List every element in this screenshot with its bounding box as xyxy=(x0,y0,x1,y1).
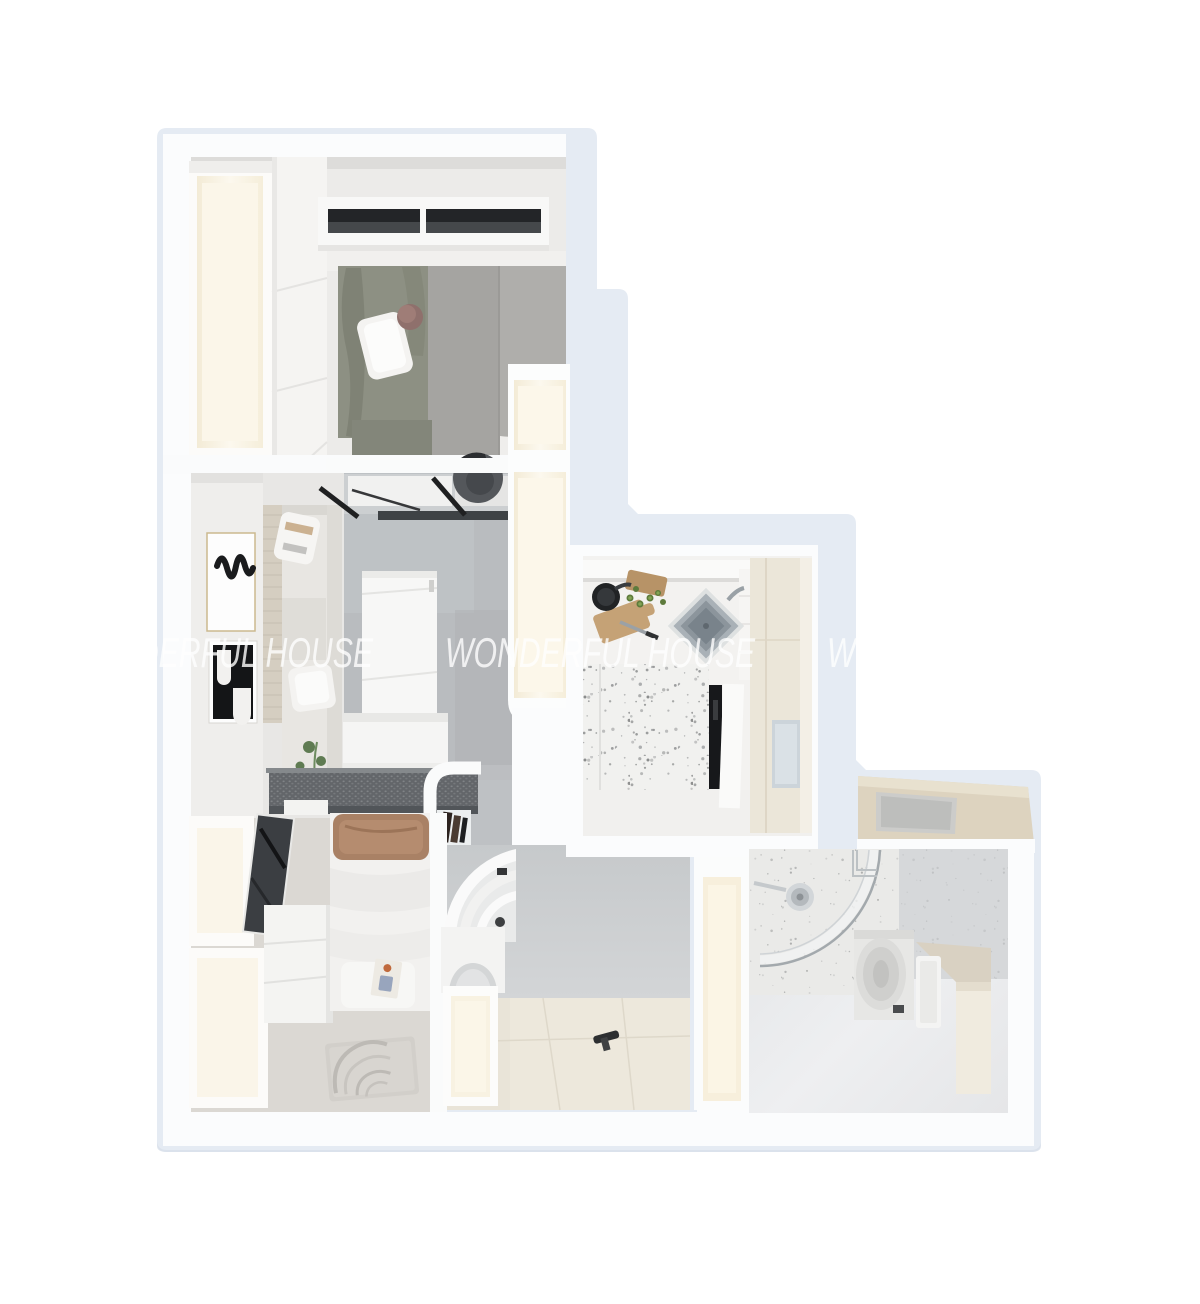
svg-text:WONDERFUL HOUSE: WONDERFUL HOUSE xyxy=(445,629,756,676)
svg-text:WONDERFUL HOUSE: WONDERFUL HOUSE xyxy=(827,629,1138,676)
svg-text:WONDERFUL HOUSE: WONDERFUL HOUSE xyxy=(63,629,374,676)
